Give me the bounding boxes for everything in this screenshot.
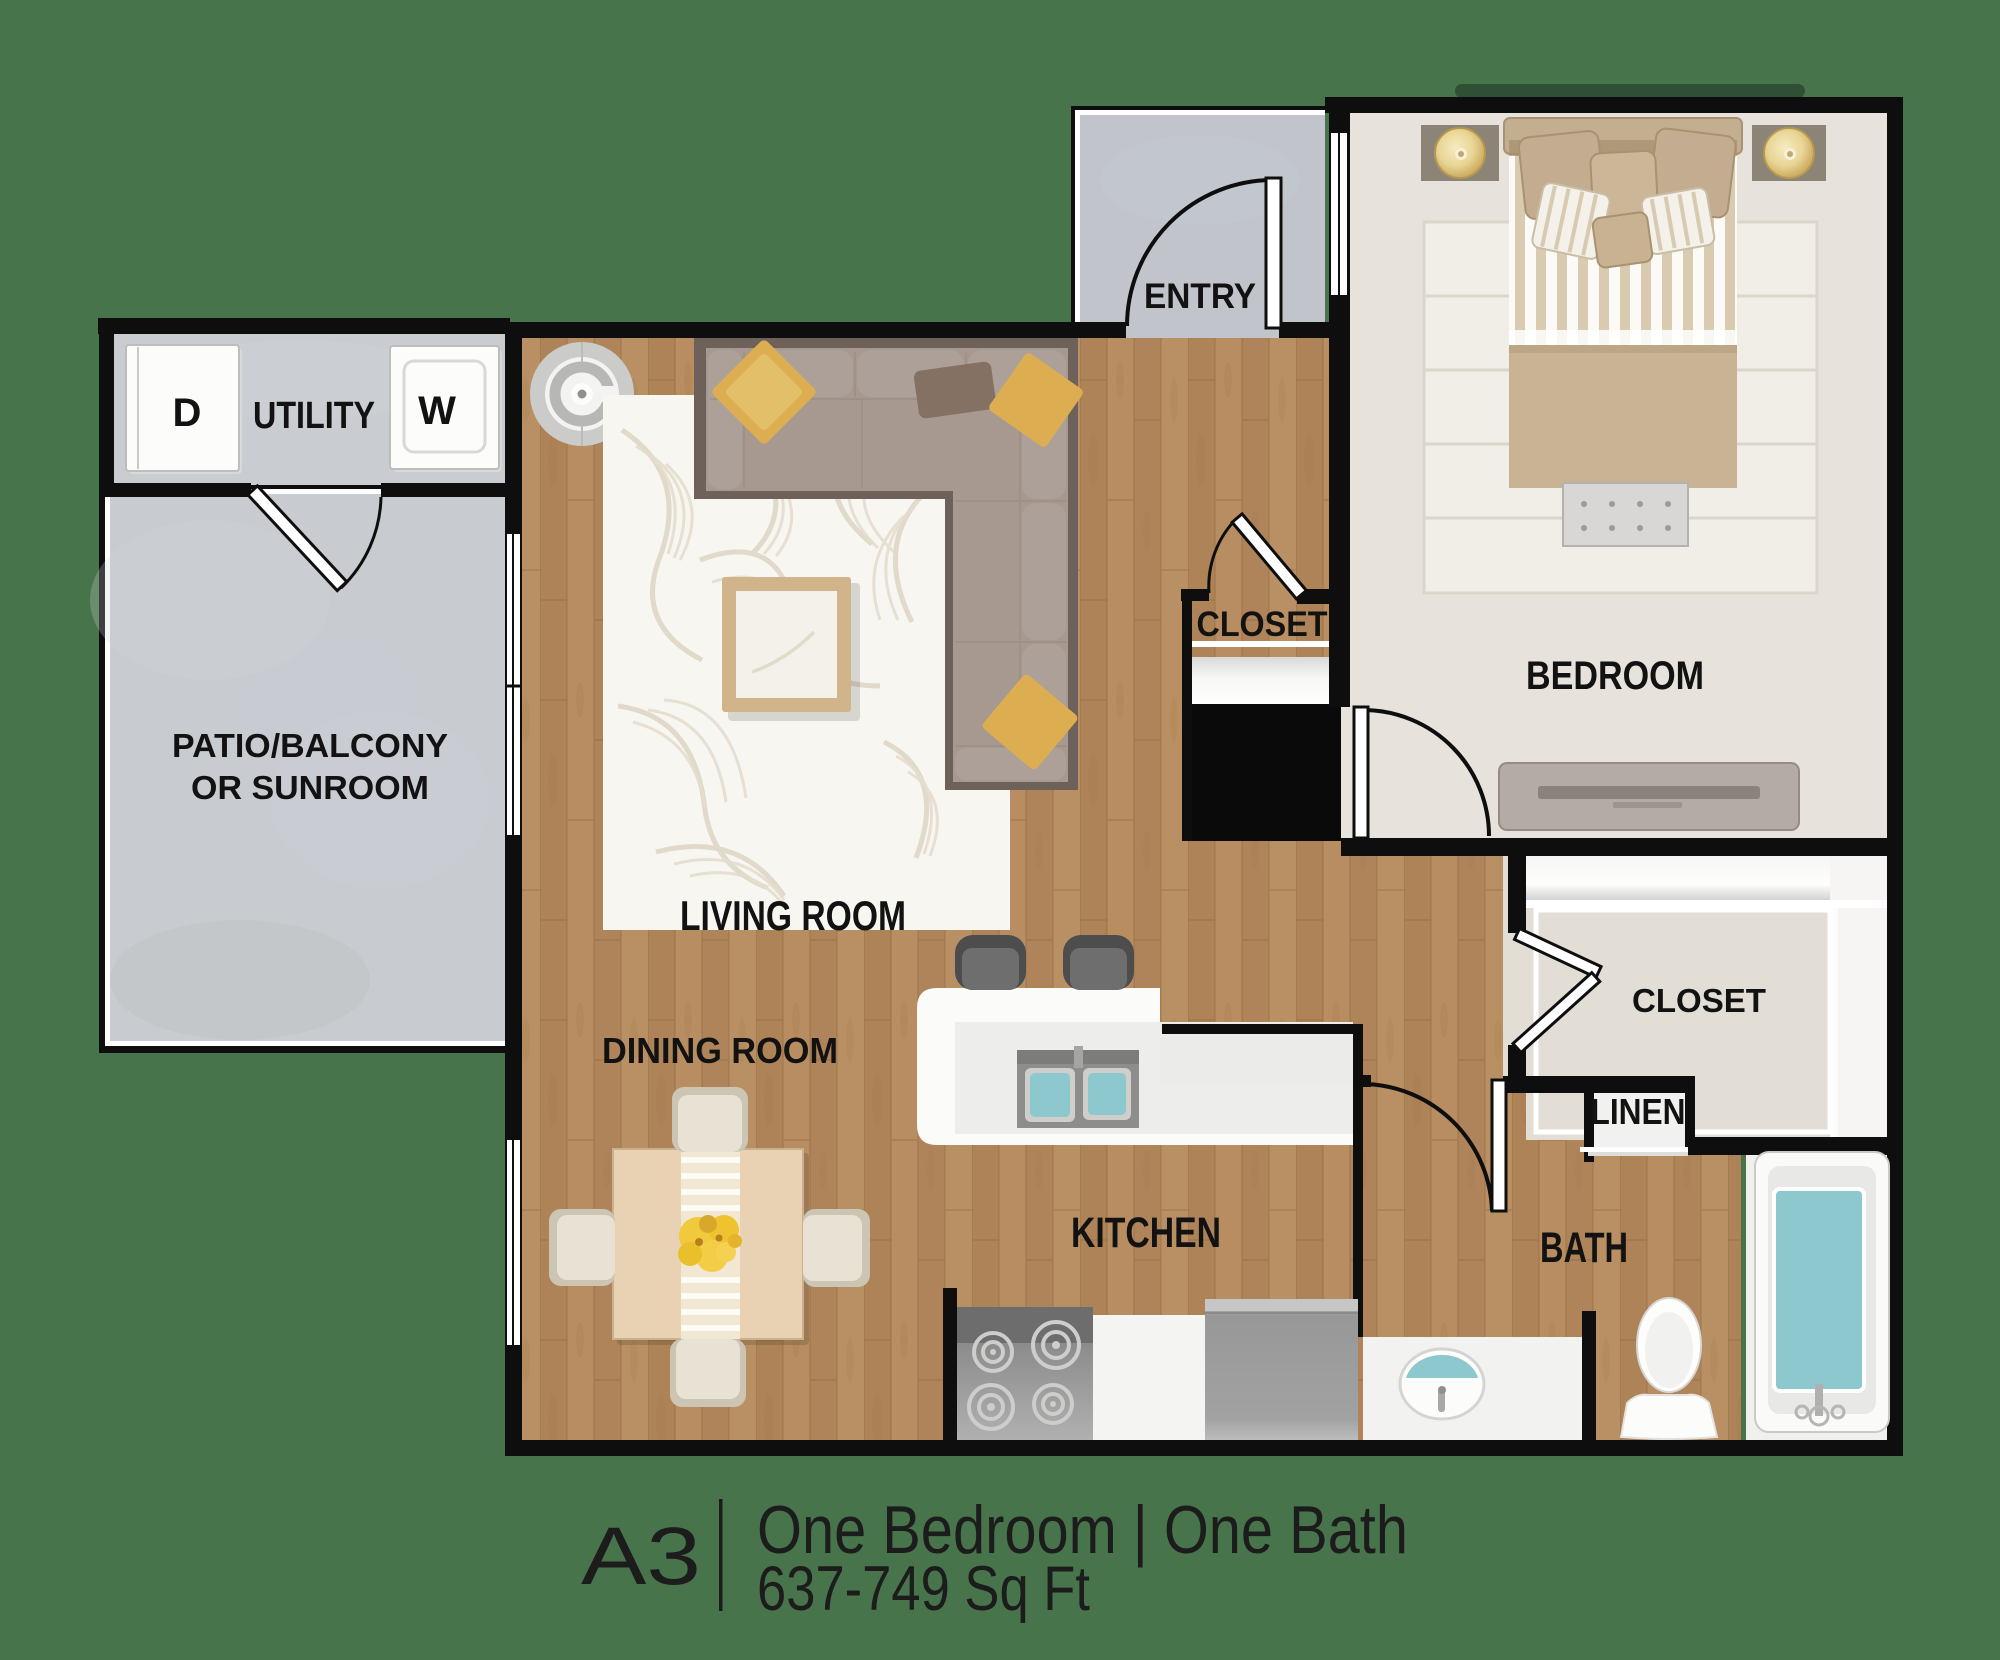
svg-text:PATIO/BALCONY: PATIO/BALCONY	[172, 727, 448, 764]
svg-text:DINING ROOM: DINING ROOM	[602, 1030, 838, 1071]
svg-text:D: D	[173, 391, 202, 435]
svg-text:OR SUNROOM: OR SUNROOM	[191, 769, 429, 806]
svg-text:637-749 Sq Ft: 637-749 Sq Ft	[757, 1554, 1090, 1624]
svg-text:LIVING ROOM: LIVING ROOM	[680, 892, 906, 939]
svg-text:W: W	[418, 389, 456, 433]
svg-text:KITCHEN: KITCHEN	[1071, 1209, 1221, 1257]
svg-text:BATH: BATH	[1540, 1224, 1628, 1272]
svg-text:CLOSET: CLOSET	[1197, 605, 1328, 644]
svg-text:A3: A3	[581, 1511, 701, 1602]
svg-text:UTILITY: UTILITY	[253, 395, 375, 437]
svg-text:LINEN: LINEN	[1591, 1091, 1686, 1132]
svg-text:BEDROOM: BEDROOM	[1526, 654, 1704, 698]
svg-text:CLOSET: CLOSET	[1632, 982, 1766, 1019]
svg-text:ENTRY: ENTRY	[1144, 277, 1256, 316]
